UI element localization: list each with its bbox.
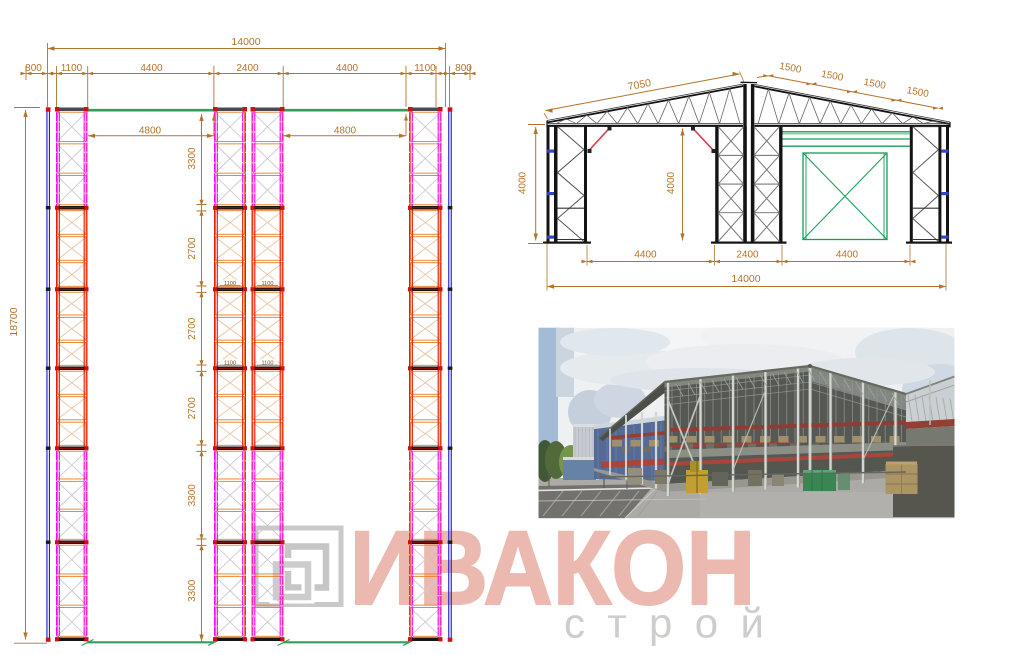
svg-text:4400: 4400 <box>634 250 657 261</box>
svg-text:1500: 1500 <box>906 85 930 100</box>
svg-text:2700: 2700 <box>187 237 198 260</box>
svg-text:2400: 2400 <box>736 250 759 261</box>
svg-text:2700: 2700 <box>187 397 198 420</box>
svg-text:14000: 14000 <box>731 273 760 285</box>
svg-text:4400: 4400 <box>140 63 163 74</box>
svg-text:4400: 4400 <box>336 63 359 74</box>
svg-text:1500: 1500 <box>820 69 844 84</box>
svg-text:4400: 4400 <box>836 250 859 261</box>
svg-text:3300: 3300 <box>187 579 198 602</box>
svg-text:3300: 3300 <box>187 484 198 507</box>
svg-text:4800: 4800 <box>334 126 357 137</box>
svg-text:800: 800 <box>25 63 42 74</box>
svg-text:2400: 2400 <box>236 63 259 74</box>
svg-text:800: 800 <box>455 63 472 74</box>
svg-text:1100: 1100 <box>61 63 83 74</box>
svg-text:4000: 4000 <box>518 171 529 194</box>
svg-text:4800: 4800 <box>139 126 162 137</box>
svg-text:1100: 1100 <box>224 281 236 287</box>
svg-text:18700: 18700 <box>8 307 20 336</box>
svg-text:2700: 2700 <box>187 317 198 340</box>
svg-text:3300: 3300 <box>187 147 198 170</box>
svg-text:1100: 1100 <box>261 281 273 287</box>
svg-text:1500: 1500 <box>778 61 802 76</box>
svg-text:1500: 1500 <box>863 77 887 92</box>
svg-text:1100: 1100 <box>414 63 436 74</box>
svg-text:14000: 14000 <box>231 36 260 48</box>
svg-text:1100: 1100 <box>224 361 236 367</box>
svg-text:1100: 1100 <box>261 361 273 367</box>
svg-text:4000: 4000 <box>666 171 677 194</box>
